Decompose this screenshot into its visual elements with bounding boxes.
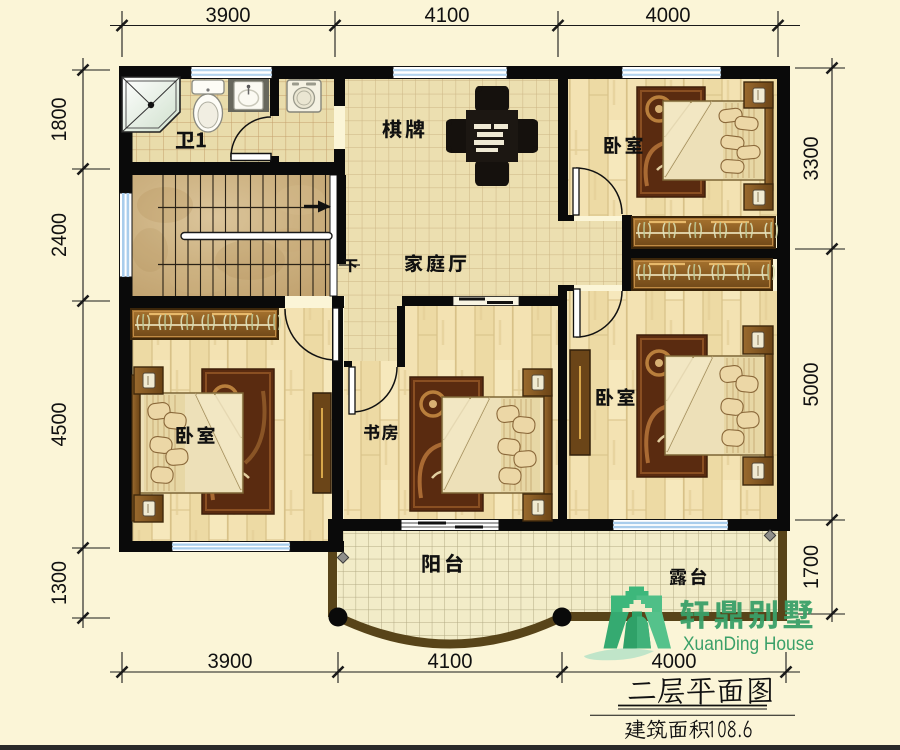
svg-text:XuanDing House: XuanDing House [683,633,814,655]
svg-text:4100: 4100 [425,4,470,27]
svg-text:1800: 1800 [48,98,71,142]
svg-text:1300: 1300 [48,561,71,605]
svg-text:3900: 3900 [208,650,253,673]
svg-text:5000: 5000 [800,363,823,407]
svg-text:3900: 3900 [206,4,251,27]
svg-text:4100: 4100 [428,650,473,673]
svg-text:4000: 4000 [646,4,691,27]
svg-text:3300: 3300 [800,137,823,181]
svg-text:4500: 4500 [48,403,71,447]
svg-text:2400: 2400 [48,213,71,257]
svg-text:1700: 1700 [800,545,823,589]
